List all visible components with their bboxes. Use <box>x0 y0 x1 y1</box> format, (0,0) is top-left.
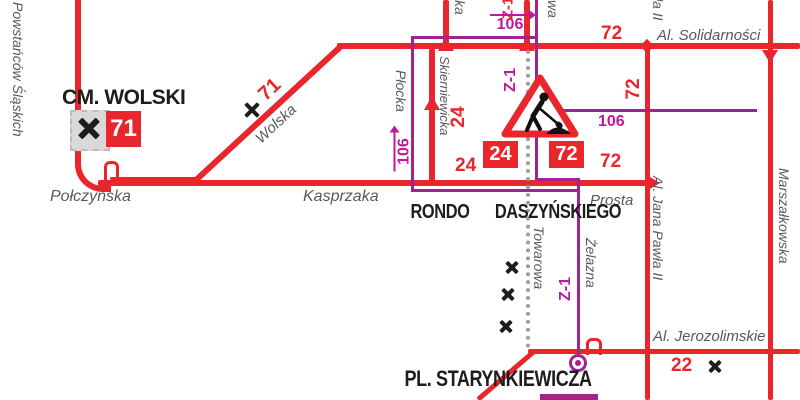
closed-stop-x-icon <box>498 319 513 334</box>
street-label-polczynska: Połczyńska <box>50 188 131 206</box>
line-z1-horizontal <box>411 189 580 192</box>
street-label-fragment-ka: ka <box>452 0 468 15</box>
route-label-106-arrow-north-icon: 106 <box>394 130 413 174</box>
line-skierniewicka <box>429 48 435 183</box>
closed-stop-x-icon <box>76 116 101 141</box>
street-label-plocka: Płocka <box>393 70 409 112</box>
route-label-106-arrow-east-icon: 106 <box>488 14 532 33</box>
stop-label-pl-starynkiewicza: PL. STARYNKIEWICZA <box>384 366 612 392</box>
closed-stop-x-icon <box>243 101 261 119</box>
line-wolska-diagonal <box>194 43 344 182</box>
route-label-z1-zelazna: Z-1 <box>557 277 575 301</box>
street-label-al-jerozolimskie: Al. Jerozolimskie <box>653 328 766 345</box>
street-label-powstancow-slaskich: Powstańców Śląskich <box>10 2 26 137</box>
closed-stop-x-icon <box>500 287 515 302</box>
line-purple-top-horizontal <box>411 36 538 39</box>
street-label-towarowa: Towarowa <box>531 226 547 289</box>
route-label-72-top: 72 <box>601 23 622 45</box>
route-badge-71: 71 <box>106 111 141 147</box>
tram-detour-map: 71 24 72 71 24 24 72 72 72 22 Z-1 Z-1 Z-… <box>0 0 800 400</box>
stop-label-rondo-line2: DASZYŃSKIEGO <box>495 200 621 225</box>
street-label-al-jana-pawla-top: ła II <box>650 0 666 21</box>
line-purple-connector <box>535 178 580 181</box>
line-al-jerozolimskie <box>528 349 800 354</box>
route-label-24: 24 <box>455 155 476 177</box>
starynkiewicza-terminal-loop-icon <box>586 338 602 355</box>
z1-badge-stub <box>540 394 598 400</box>
junction-dot-icon <box>640 39 654 53</box>
route-label-z1-towarowa: Z-1 <box>502 68 520 92</box>
closed-stop-x-icon <box>707 359 722 374</box>
street-label-fragment-wa: wa <box>545 0 561 18</box>
street-label-kasprzaka: Kasprzaka <box>303 188 379 206</box>
direction-arrow-icon <box>762 50 778 63</box>
stop-label-cm-wolski: CM. WOLSKI <box>62 86 185 110</box>
route-badge-72: 72 <box>549 141 584 168</box>
direction-arrow-icon <box>438 37 454 51</box>
route-label-22: 22 <box>671 355 692 377</box>
closed-stop-x-icon <box>504 260 519 275</box>
street-label-skierniewicka: Skierniewicka <box>437 56 452 135</box>
street-label-al-solidarnosci: Al. Solidarności <box>657 27 760 44</box>
street-label-marszalkowska: Marszałkowska <box>776 168 792 264</box>
route-badge-24: 24 <box>483 141 518 168</box>
route-label-72-vertical: 72 <box>623 78 645 99</box>
street-label-al-jana-pawla: Al. Jana Pawła II <box>650 176 666 280</box>
stop-label-rondo-line1: RONDO <box>410 200 469 225</box>
line-cm-wolski-branch <box>110 177 200 180</box>
direction-arrow-icon <box>519 37 535 51</box>
stop-label-rondo-daszynskiego: RONDO DASZYŃSKIEGO <box>404 200 524 225</box>
cm-wolski-terminal-loop-icon <box>104 161 119 181</box>
route-label-106-east: 106 <box>598 113 625 131</box>
route-label-72-prosta: 72 <box>600 151 621 173</box>
street-label-zelazna: Żelazna <box>583 238 599 288</box>
